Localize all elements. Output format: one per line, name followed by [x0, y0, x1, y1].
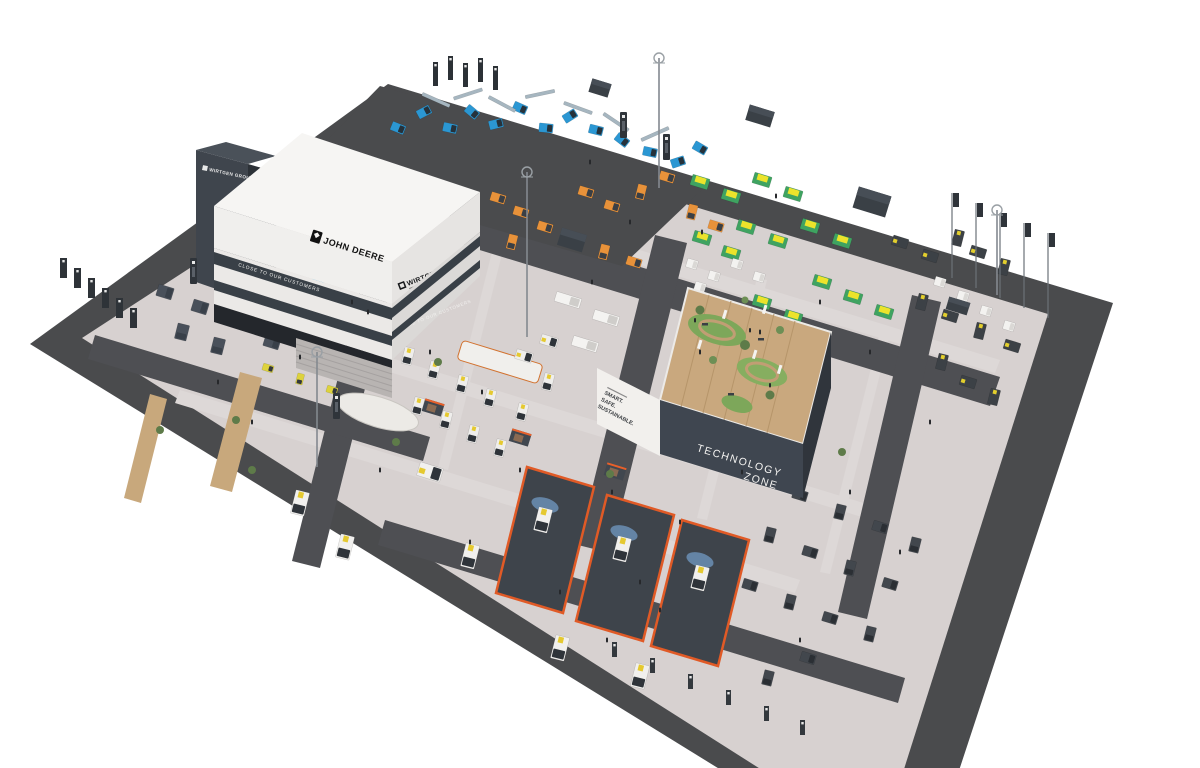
banner-logo-icon — [62, 260, 64, 262]
person-figure — [589, 160, 591, 165]
person-figure — [769, 383, 771, 388]
person-figure — [819, 300, 821, 305]
banner-logo-icon — [494, 68, 496, 70]
person-figure — [469, 540, 471, 545]
person-figure — [741, 470, 743, 475]
person-figure — [251, 420, 253, 425]
garden-bench — [758, 338, 764, 341]
person-figure — [659, 608, 661, 613]
tree — [434, 358, 442, 366]
tree — [248, 466, 256, 474]
pole-flag — [953, 193, 959, 207]
perimeter-banner-flag — [764, 706, 769, 721]
garden-tree — [696, 306, 705, 315]
person-figure — [481, 390, 483, 395]
pole-flag — [1025, 223, 1031, 237]
garden-tree — [766, 391, 775, 400]
wirtgen-logo-icon — [202, 165, 208, 171]
info-pylon — [663, 134, 670, 160]
banner-logo-icon — [132, 310, 134, 312]
banner-logo-icon — [449, 58, 451, 60]
pylon-logo-icon — [335, 396, 338, 399]
banner-logo-icon — [90, 280, 92, 282]
top-banner-flag — [463, 63, 468, 87]
person-figure — [639, 580, 641, 585]
exhibition-stand-render: WIRTGEN GROUP JOHN DEERE WIRTGEN GROUP C… — [0, 0, 1200, 768]
banner-logo-icon — [765, 708, 767, 710]
perimeter-banner-flag — [688, 674, 693, 689]
person-figure — [849, 490, 851, 495]
person-figure — [775, 194, 777, 199]
banner-logo-icon — [613, 644, 615, 646]
left-banner-flag — [74, 268, 81, 288]
top-banner-flag — [478, 58, 483, 82]
person-figure — [217, 380, 219, 385]
person-figure — [611, 490, 613, 495]
banner-logo-icon — [76, 270, 78, 272]
person-figure — [379, 468, 381, 473]
left-banner-flag — [116, 298, 123, 318]
banner-logo-icon — [651, 660, 653, 662]
top-banner-flag — [433, 62, 438, 86]
pole-flag — [1049, 233, 1055, 247]
banner-logo-icon — [464, 65, 466, 67]
person-figure — [429, 350, 431, 355]
banner-logo-icon — [727, 692, 729, 694]
garden-bench — [702, 323, 708, 326]
person-figure — [559, 590, 561, 595]
pylon-logo-icon — [665, 137, 668, 140]
banner-logo-icon — [434, 64, 436, 66]
garden-tree — [776, 326, 784, 334]
person-figure — [869, 350, 871, 355]
banner-logo-icon — [118, 300, 120, 302]
perimeter-banner-flag — [612, 642, 617, 657]
tree — [838, 448, 846, 456]
person-figure — [749, 328, 751, 333]
perimeter-banner-flag — [650, 658, 655, 673]
person-figure — [679, 520, 681, 525]
garden-tree — [742, 297, 749, 304]
banner-logo-icon — [801, 722, 803, 724]
left-banner-flag — [60, 258, 67, 278]
person-figure — [899, 550, 901, 555]
garden-bench — [728, 393, 734, 396]
top-banner-flag — [493, 66, 498, 90]
banner-logo-icon — [104, 290, 106, 292]
perimeter-banner-flag — [800, 720, 805, 735]
left-banner-flag — [102, 288, 109, 308]
person-figure — [519, 468, 521, 473]
pylon-logo-icon — [622, 115, 625, 118]
person-figure — [591, 280, 593, 285]
left-banner-flag — [130, 308, 137, 328]
tree — [232, 416, 240, 424]
person-figure — [299, 355, 301, 360]
banner-logo-icon — [689, 676, 691, 678]
scene-canvas: WIRTGEN GROUP JOHN DEERE WIRTGEN GROUP C… — [0, 0, 1200, 768]
kleemann-crusher — [539, 123, 554, 133]
person-figure — [929, 420, 931, 425]
person-figure — [701, 230, 703, 235]
info-pylon — [620, 112, 627, 138]
info-pylon — [333, 393, 340, 419]
tree — [392, 438, 400, 446]
garden-tree — [740, 340, 750, 350]
garden-tree — [709, 356, 717, 364]
tree — [156, 426, 164, 434]
perimeter-banner-flag — [726, 690, 731, 705]
pole-flag — [977, 203, 983, 217]
top-banner-flag — [448, 56, 453, 80]
person-figure — [799, 638, 801, 643]
person-figure — [694, 318, 696, 323]
pylon-logo-icon — [192, 261, 195, 264]
person-figure — [629, 220, 631, 225]
info-pylon — [190, 258, 197, 284]
tree — [606, 470, 614, 478]
banner-logo-icon — [479, 60, 481, 62]
person-figure — [351, 300, 353, 305]
left-banner-flag — [88, 278, 95, 298]
person-figure — [699, 350, 701, 355]
person-figure — [759, 330, 761, 335]
person-figure — [606, 638, 608, 643]
person-figure — [367, 310, 369, 315]
